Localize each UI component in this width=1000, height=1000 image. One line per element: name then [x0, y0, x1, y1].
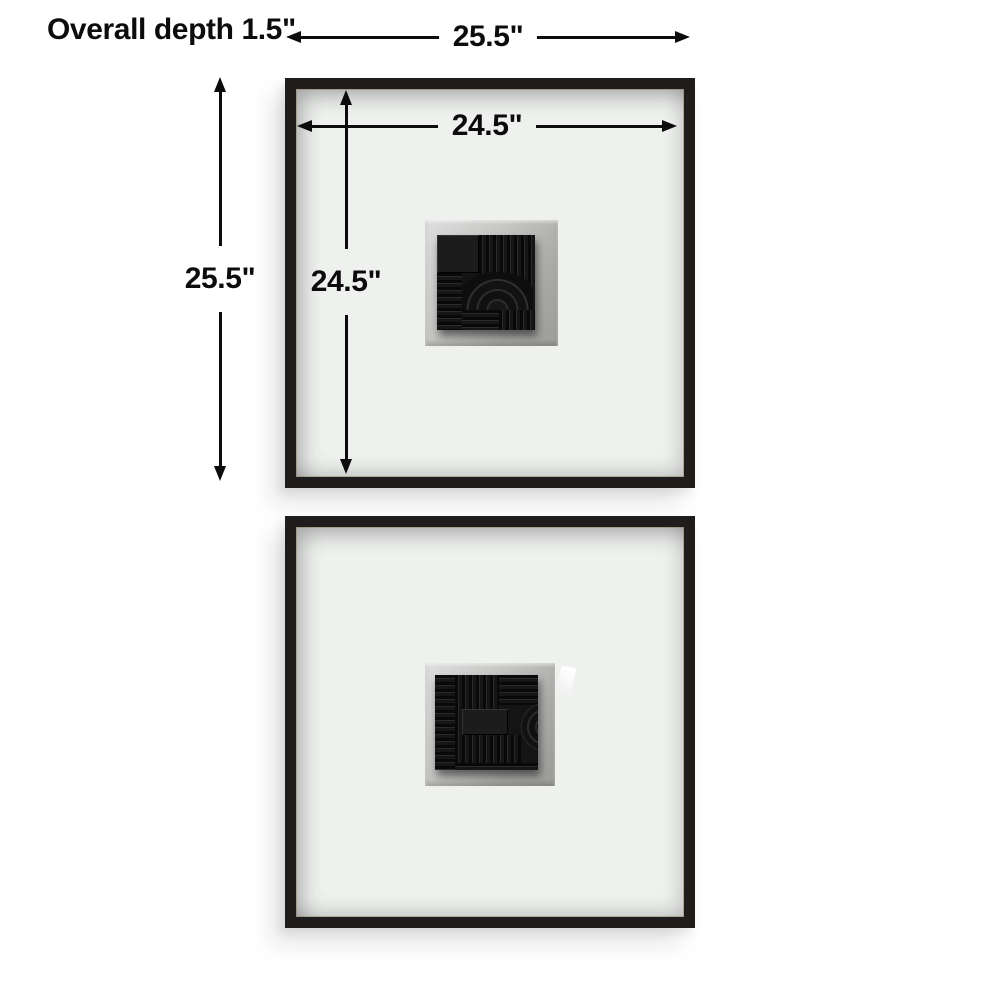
tile-arch-motif [462, 272, 533, 310]
dimension-line [536, 125, 662, 128]
shadowbox-recess [425, 663, 555, 786]
tile-solid-block [437, 235, 479, 273]
tile-horizontal-ribs [435, 675, 455, 770]
tile-solid-block [462, 709, 508, 735]
arrow-down-icon [214, 466, 226, 481]
dimension-line [219, 312, 222, 466]
inner-width-label: 24.5" [438, 111, 537, 141]
dimension-line [345, 105, 348, 249]
arrow-left-icon [286, 31, 301, 43]
tile-horizontal-ribs [499, 675, 538, 705]
overall-depth-label: Overall depth 1.5" [47, 13, 296, 47]
arrow-down-icon [340, 459, 352, 474]
arrow-right-icon [662, 120, 677, 132]
relief-art-tile [437, 235, 535, 330]
outer-width-label: 25.5" [439, 22, 538, 52]
outer-height-label: 25.5" [185, 246, 256, 312]
relief-art-tile [435, 675, 538, 770]
arrow-up-icon [340, 90, 352, 105]
arrow-right-icon [675, 31, 690, 43]
inner-height-label: 24.5" [311, 249, 382, 315]
dimension-line [537, 36, 675, 39]
tile-horizontal-ribs [437, 273, 462, 330]
tile-horizontal-ribs [462, 310, 499, 330]
tile-vertical-ribs [455, 735, 521, 763]
glass-reflection [554, 666, 576, 697]
tile-horizontal-ribs [455, 763, 538, 770]
dimension-line [301, 36, 439, 39]
arrow-left-icon [297, 120, 312, 132]
inner-height-dimension: 24.5" [325, 90, 367, 474]
dimension-line [345, 315, 348, 459]
arrow-up-icon [214, 77, 226, 92]
tile-vertical-ribs [499, 310, 535, 330]
diagram-canvas: Overall depth 1.5" 25.5" 25.5" 24.5" 24.… [0, 0, 1000, 1000]
outer-width-dimension: 25.5" [286, 21, 690, 53]
dimension-line [219, 92, 222, 246]
outer-height-dimension: 25.5" [199, 77, 241, 481]
shadowbox-recess [425, 220, 558, 346]
shadowbox-frame-bottom [285, 516, 695, 928]
frame-mat [296, 527, 684, 917]
tile-circle-motif [521, 703, 538, 751]
